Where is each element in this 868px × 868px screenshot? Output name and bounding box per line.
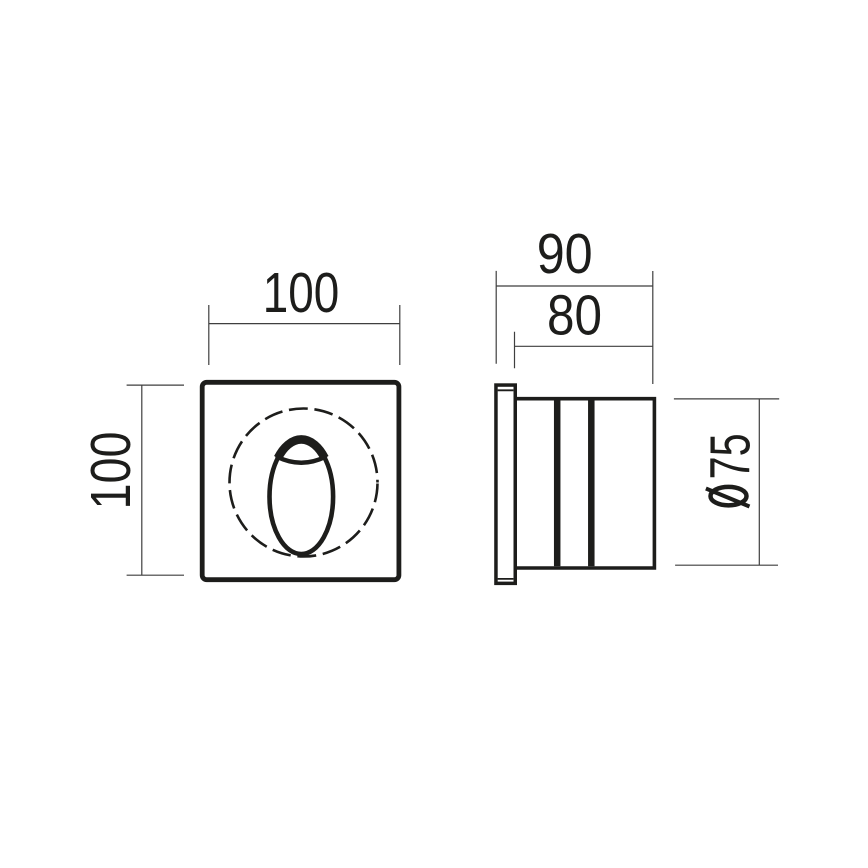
svg-text:100: 100 <box>79 432 143 510</box>
svg-text:80: 80 <box>547 283 602 347</box>
svg-text:90: 90 <box>537 222 593 286</box>
svg-text:75: 75 <box>699 433 763 479</box>
svg-text:100: 100 <box>263 261 340 325</box>
